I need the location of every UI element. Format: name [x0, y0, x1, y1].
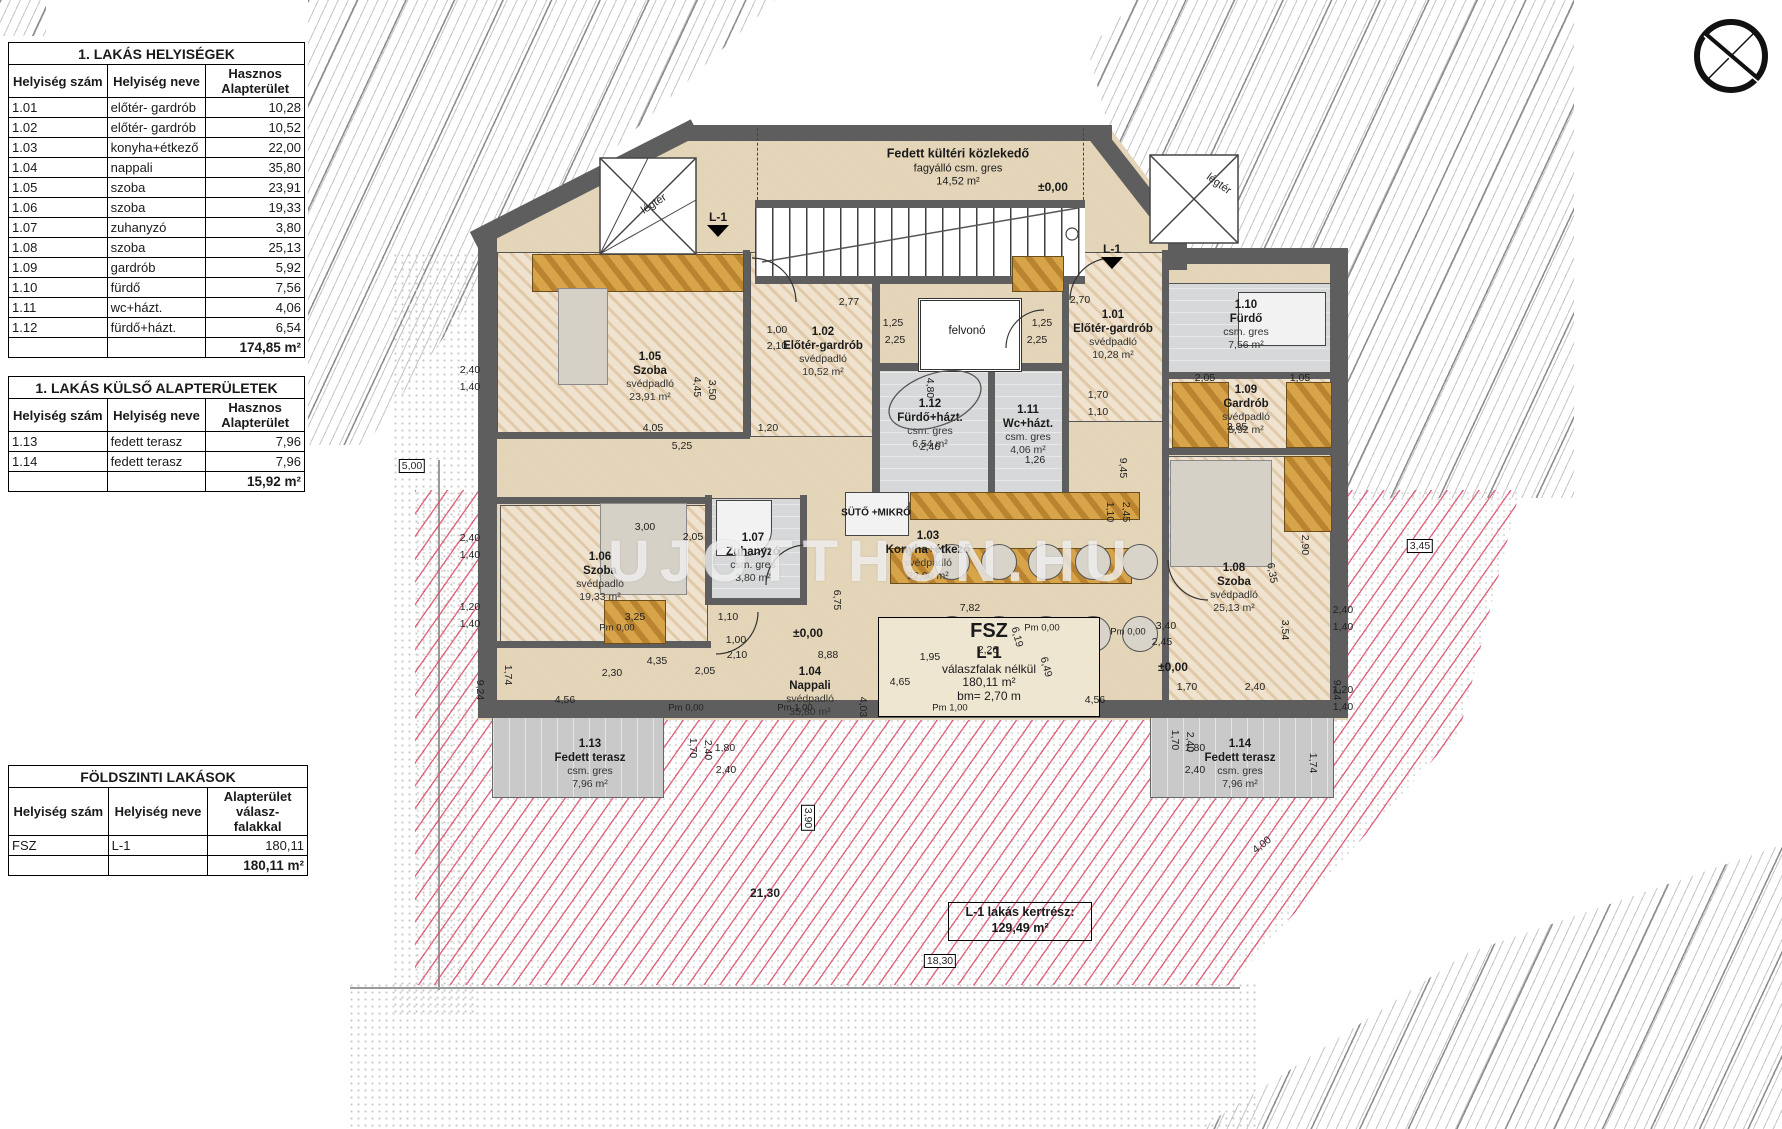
room-name: Szoba: [626, 364, 674, 378]
table-row: 1.13fedett terasz7,96: [9, 432, 305, 452]
section-marker: L-1: [1101, 242, 1123, 269]
level-mark: ±0,00: [793, 626, 823, 640]
dimension-label: 3,40: [1156, 620, 1176, 632]
garden-line1: L-1 lakás kertrész:: [949, 904, 1091, 920]
dimension-label: 18,30: [924, 954, 956, 968]
room-1.05-label: 1.05 Szoba svédpadló 23,91 m²: [626, 350, 674, 404]
section-marker-label: L-1: [707, 210, 729, 224]
dimension-label: 3,85: [1227, 421, 1247, 433]
dimension-label: 2,25: [885, 334, 905, 346]
dimension-label: 2,40: [716, 764, 736, 776]
dimension-label: 21,30: [750, 886, 780, 900]
table-title: FÖLDSZINTI LAKÁSOK: [9, 766, 308, 788]
room-floor-type: csm. gres: [1003, 431, 1053, 444]
oven-label: SÜTŐ +MIKRÓ: [841, 508, 911, 519]
table-row: 1.01előtér- gardrób10,28: [9, 98, 305, 118]
bed: [1170, 460, 1272, 567]
dimension-label: 4,80: [924, 378, 936, 398]
room-floor-type: csm. gres: [726, 559, 780, 572]
dimension-label: 3,50: [706, 380, 718, 400]
column-header: Alapterület válasz- falakkal: [208, 788, 308, 836]
dimension-label: 1,20: [460, 601, 480, 613]
room-number: 1.06: [576, 550, 624, 564]
room-name: Előtér-gardrób: [783, 339, 863, 353]
room-floor-type: svédpadló: [1210, 589, 1258, 602]
table-foldszinti-lakasok: FÖLDSZINTI LAKÁSOKHelyiség számHelyiség …: [8, 765, 308, 876]
dimension-label: 2,90: [1299, 535, 1311, 555]
column-header: Helyiség neve: [108, 788, 208, 836]
room-area: 7,56 m²: [1223, 339, 1269, 352]
table-row: 1.07zuhanyzó3,80: [9, 218, 305, 238]
chair-icon: [1075, 544, 1111, 580]
wall: [988, 368, 995, 505]
dimension-label: 1,05: [1290, 372, 1310, 384]
dimension-label: 2,40: [460, 364, 480, 376]
dimension-label: 9,24: [474, 680, 486, 700]
room-name: Szoba: [1210, 575, 1258, 589]
column-header: Helyiség szám: [9, 399, 108, 432]
fsz-line5: bm= 2,70 m: [879, 690, 1099, 704]
room-1.03-label: 1.03 Konyha+étkező svédpadló 22,00 m²: [886, 529, 971, 583]
pm-level-mark: Pm 1,00: [932, 703, 967, 714]
dimension-label: 3,54: [1279, 620, 1291, 640]
wardrobe: [532, 254, 744, 292]
table-row: 1.12fürdő+házt.6,54: [9, 318, 305, 338]
table-row: 1.06szoba19,33: [9, 198, 305, 218]
table-row: 1.11wc+házt.4,06: [9, 298, 305, 318]
room-area: 10,28 m²: [1073, 349, 1153, 362]
total-row: 15,92 m²: [9, 472, 305, 492]
dimension-label: 1,70: [1088, 389, 1108, 401]
room-floor-type: csm. gres: [897, 425, 963, 438]
room-number: 1.11: [1003, 403, 1053, 417]
dimension-label: 1,80: [715, 742, 735, 754]
wall: [872, 250, 880, 508]
room-name: Szoba: [576, 564, 624, 578]
dimension-label: 3,25: [625, 611, 645, 623]
dimension-label: 4,05: [643, 422, 663, 434]
room-name: Gardrób: [1222, 397, 1270, 411]
room-1.07-label: 1.07 Zuhanyzó csm. gres 3,80 m²: [726, 531, 780, 585]
table-title: 1. LAKÁS HELYISÉGEK: [9, 43, 305, 65]
dimension-label: 1,40: [460, 618, 480, 630]
section-marker: L-1: [707, 210, 729, 237]
column-header: Helyiség neve: [107, 65, 206, 98]
wardrobe: [1286, 382, 1332, 448]
room-area: 7,96 m²: [1205, 778, 1276, 791]
room-floor-type: csm. gres: [555, 765, 626, 778]
fsz-line1: FSZ: [879, 620, 1099, 643]
dimension-label: 8,88: [818, 649, 838, 661]
column-header: Helyiség szám: [9, 788, 109, 836]
column-header: Hasznos Alapterület: [206, 399, 305, 432]
dimension-label: 1,40: [460, 549, 480, 561]
room-area: 7,96 m²: [555, 778, 626, 791]
dimension-label: 2,40: [1185, 764, 1205, 776]
dimension-label: 2,45: [1152, 636, 1172, 648]
table-kulso-alapteruletek: 1. LAKÁS KÜLSŐ ALAPTERÜLETEKHelyiség szá…: [8, 376, 305, 492]
dimension-label: 1,00: [726, 634, 746, 646]
terrain-line: [350, 987, 1240, 989]
cabinet: [1012, 256, 1064, 292]
corridor-area: 14,52 m²: [887, 176, 1029, 190]
north-symbol-icon: [1697, 22, 1765, 90]
hatch-corner: [0, 0, 46, 36]
dimension-label: 2,26: [978, 644, 998, 656]
table-row: 1.14fedett terasz7,96: [9, 452, 305, 472]
dimension-label: 7,82: [960, 602, 980, 614]
dimension-label: 2,05: [695, 665, 715, 677]
dimension-label: 1,74: [502, 665, 514, 685]
wall: [705, 495, 712, 605]
corridor-floor: fagyálló csm. gres: [887, 162, 1029, 176]
room-number: 1.08: [1210, 561, 1258, 575]
section-arrow-icon: [707, 225, 729, 237]
dimension-label: 9,45: [1117, 458, 1129, 478]
dimension-label: 6,75: [831, 590, 843, 610]
chair-icon: [1028, 544, 1064, 580]
fsz-summary-box: FSZ L-1 válaszfalak nélkül 180,11 m² bm=…: [878, 617, 1100, 717]
room-name: Fürdő: [1223, 312, 1269, 326]
wall: [478, 237, 497, 718]
room-number: 1.05: [626, 350, 674, 364]
room-number: 1.04: [786, 665, 834, 679]
dimension-label: 1,26: [1025, 454, 1045, 466]
wall: [497, 432, 750, 439]
dimension-label: 2,70: [1070, 294, 1090, 306]
corridor-dashed-edge: [757, 128, 758, 200]
room-1.10-label: 1.10 Fürdő csm. gres 7,56 m²: [1223, 298, 1269, 352]
room-number: 1.14: [1205, 737, 1276, 751]
room-1.14-label: 1.14 Fedett terasz csm. gres 7,96 m²: [1205, 737, 1276, 791]
room-1.11-label: 1.11 Wc+házt. csm. gres 4,06 m²: [1003, 403, 1053, 457]
dimension-label: 1,70: [1169, 730, 1181, 750]
table-row: 1.04nappali35,80: [9, 158, 305, 178]
room-number: 1.09: [1222, 383, 1270, 397]
dimension-label: 2,30: [602, 667, 622, 679]
pm-level-mark: Pm 0,00: [668, 703, 703, 714]
room-area: 22,00 m²: [886, 570, 971, 583]
room-number: 1.12: [897, 397, 963, 411]
dimension-label: 3,45: [1407, 539, 1433, 553]
dimension-label: 5,00: [399, 459, 425, 473]
dimension-label: 1,10: [1088, 406, 1108, 418]
room-floor-type: csm. gres: [1223, 326, 1269, 339]
section-marker-label: L-1: [1101, 242, 1123, 256]
dimension-label: 1,40: [1333, 701, 1353, 713]
dimension-label: 4,65: [890, 676, 910, 688]
room-number: 1.03: [886, 529, 971, 543]
room-1.02-label: 1.02 Előtér-gardrób svédpadló 10,52 m²: [783, 325, 863, 379]
dimension-label: 1,70: [687, 738, 699, 758]
room-1.13-label: 1.13 Fedett terasz csm. gres 7,96 m²: [555, 737, 626, 791]
room-name: Konyha+étkező: [886, 543, 971, 557]
dimension-label: 4,03: [857, 697, 869, 717]
table-row: 1.05szoba23,91: [9, 178, 305, 198]
dimension-label: 1,70: [1177, 681, 1197, 693]
dimension-label: 1,40: [1333, 621, 1353, 633]
level-mark: ±0,00: [1038, 180, 1068, 194]
dimension-label: 2,40: [1333, 604, 1353, 616]
dimension-label: 2,10: [767, 340, 787, 352]
dimension-label: 1,25: [1032, 317, 1052, 329]
room-area: 3,80 m²: [726, 572, 780, 585]
wall: [743, 250, 750, 435]
dimension-label: 5,25: [672, 440, 692, 452]
section-arrow-icon: [1101, 257, 1123, 269]
dimension-label: 2,77: [839, 296, 859, 308]
room-number: 1.10: [1223, 298, 1269, 312]
room-area: 23,91 m²: [626, 391, 674, 404]
table-row: 1.08szoba25,13: [9, 238, 305, 258]
dimension-label: 2,45: [1120, 502, 1132, 522]
room-1.06-label: 1.06 Szoba svédpadló 19,33 m²: [576, 550, 624, 604]
dimension-label: 1,95: [920, 651, 940, 663]
wall: [1330, 248, 1348, 718]
table-row: 1.10fürdő7,56: [9, 278, 305, 298]
dimension-label: 2,40: [1184, 732, 1196, 752]
room-number: 1.02: [783, 325, 863, 339]
room-area: 10,52 m²: [783, 366, 863, 379]
garden-line2: 129,49 m²: [949, 920, 1091, 936]
room-area: 25,13 m²: [1210, 602, 1258, 615]
room-name: Nappali: [786, 679, 834, 693]
table-row: 1.09gardrób5,92: [9, 258, 305, 278]
dimension-label: 4,45: [691, 377, 703, 397]
wall: [705, 598, 807, 605]
wall: [800, 495, 807, 605]
room-floor-type: csm. gres: [1205, 765, 1276, 778]
dimension-label: 2,10: [727, 649, 747, 661]
room-floor-type: svédpadló: [626, 378, 674, 391]
wall: [688, 125, 1112, 141]
elevator-label: felvonó: [948, 325, 985, 337]
dimension-label: 1,00: [767, 324, 787, 336]
pm-level-mark: Pm 0,00: [1024, 623, 1059, 634]
level-mark: ±0,00: [1158, 660, 1188, 674]
room-area: 19,33 m²: [576, 591, 624, 604]
dimension-label: 1,10: [718, 611, 738, 623]
room-floor-type: svédpadló: [1073, 336, 1153, 349]
room-name: Fürdő+házt.: [897, 411, 963, 425]
dimension-label: 1,10: [1104, 502, 1116, 522]
pm-level-mark: Pm 0,00: [599, 623, 634, 634]
corridor-dashed-edge: [1083, 128, 1084, 200]
wall: [1168, 248, 1348, 264]
room-1.01-label: 1.01 Előtér-gardrób svédpadló 10,28 m²: [1073, 308, 1153, 362]
column-header: Hasznos Alapterület: [206, 65, 305, 98]
wardrobe: [1284, 456, 1332, 532]
chair-icon: [1122, 544, 1158, 580]
corridor-label: Fedett kültéri közlekedő fagyálló csm. g…: [887, 146, 1029, 189]
room-name: Fedett terasz: [555, 751, 626, 765]
room-number: 1.01: [1073, 308, 1153, 322]
dimension-label: 3,00: [635, 521, 655, 533]
bed: [558, 288, 608, 385]
table-row: 1.02előtér- gardrób10,52: [9, 118, 305, 138]
room-floor-type: svédpadló: [783, 353, 863, 366]
room-name: Zuhanyzó: [726, 545, 780, 559]
corridor-name: Fedett kültéri közlekedő: [887, 146, 1029, 162]
dimension-label: 4,56: [555, 694, 575, 706]
table-row: FSZL-1180,11: [9, 836, 308, 856]
wardrobe: [1172, 382, 1229, 448]
dimension-label: 2,25: [1027, 334, 1047, 346]
dimension-label: 1,25: [883, 317, 903, 329]
gravel-bottom: [348, 982, 1258, 1129]
dimension-label: 2,40: [1245, 681, 1265, 693]
fsz-line3: válaszfalak nélkül: [879, 663, 1099, 677]
room-name: Fedett terasz: [1205, 751, 1276, 765]
room-1.08-label: 1.08 Szoba svédpadló 25,13 m²: [1210, 561, 1258, 615]
wall: [1168, 448, 1332, 455]
dimension-label: 2,46: [920, 441, 940, 453]
dimension-label: 1,74: [1307, 753, 1319, 773]
garden-label-box: L-1 lakás kertrész: 129,49 m²: [948, 902, 1092, 941]
dimension-label: 2,05: [683, 531, 703, 543]
table-row: 1.03konyha+étkező22,00: [9, 138, 305, 158]
column-header: Helyiség neve: [107, 399, 206, 432]
table-lakas-helyisegek: 1. LAKÁS HELYISÉGEKHelyiség számHelyiség…: [8, 42, 305, 358]
dimension-label: 2,40: [702, 740, 714, 760]
dimension-label: 2,05: [1195, 372, 1215, 384]
chair-icon: [981, 544, 1017, 580]
room-floor-type: svédpadló: [886, 557, 971, 570]
dimension-label: 9,24: [1331, 680, 1343, 700]
room-name: Előtér-gardrób: [1073, 322, 1153, 336]
pm-level-mark: Pm 1,00: [777, 703, 812, 714]
room-number: 1.07: [726, 531, 780, 545]
room-number: 1.13: [555, 737, 626, 751]
pm-level-mark: Pm 0,00: [1110, 627, 1145, 638]
dimension-label: 1,40: [460, 381, 480, 393]
dimension-label: 4,56: [1085, 694, 1105, 706]
room-name: Wc+házt.: [1003, 417, 1053, 431]
dimension-label: 2,40: [460, 532, 480, 544]
room-floor-type: svédpadló: [576, 578, 624, 591]
total-row: 180,11 m²: [9, 856, 308, 876]
fsz-line4: 180,11 m²: [879, 676, 1099, 690]
floorplan-sheet: { "tables": [ { "title": "1. LAKÁS HELYI…: [0, 0, 1782, 1129]
total-row: 174,85 m²: [9, 338, 305, 358]
dimension-label: 1,20: [758, 422, 778, 434]
dimension-label: 4,35: [647, 655, 667, 667]
column-header: Helyiség szám: [9, 65, 108, 98]
table-title: 1. LAKÁS KÜLSŐ ALAPTERÜLETEK: [9, 377, 305, 399]
dimension-label: 3,90: [801, 805, 815, 831]
